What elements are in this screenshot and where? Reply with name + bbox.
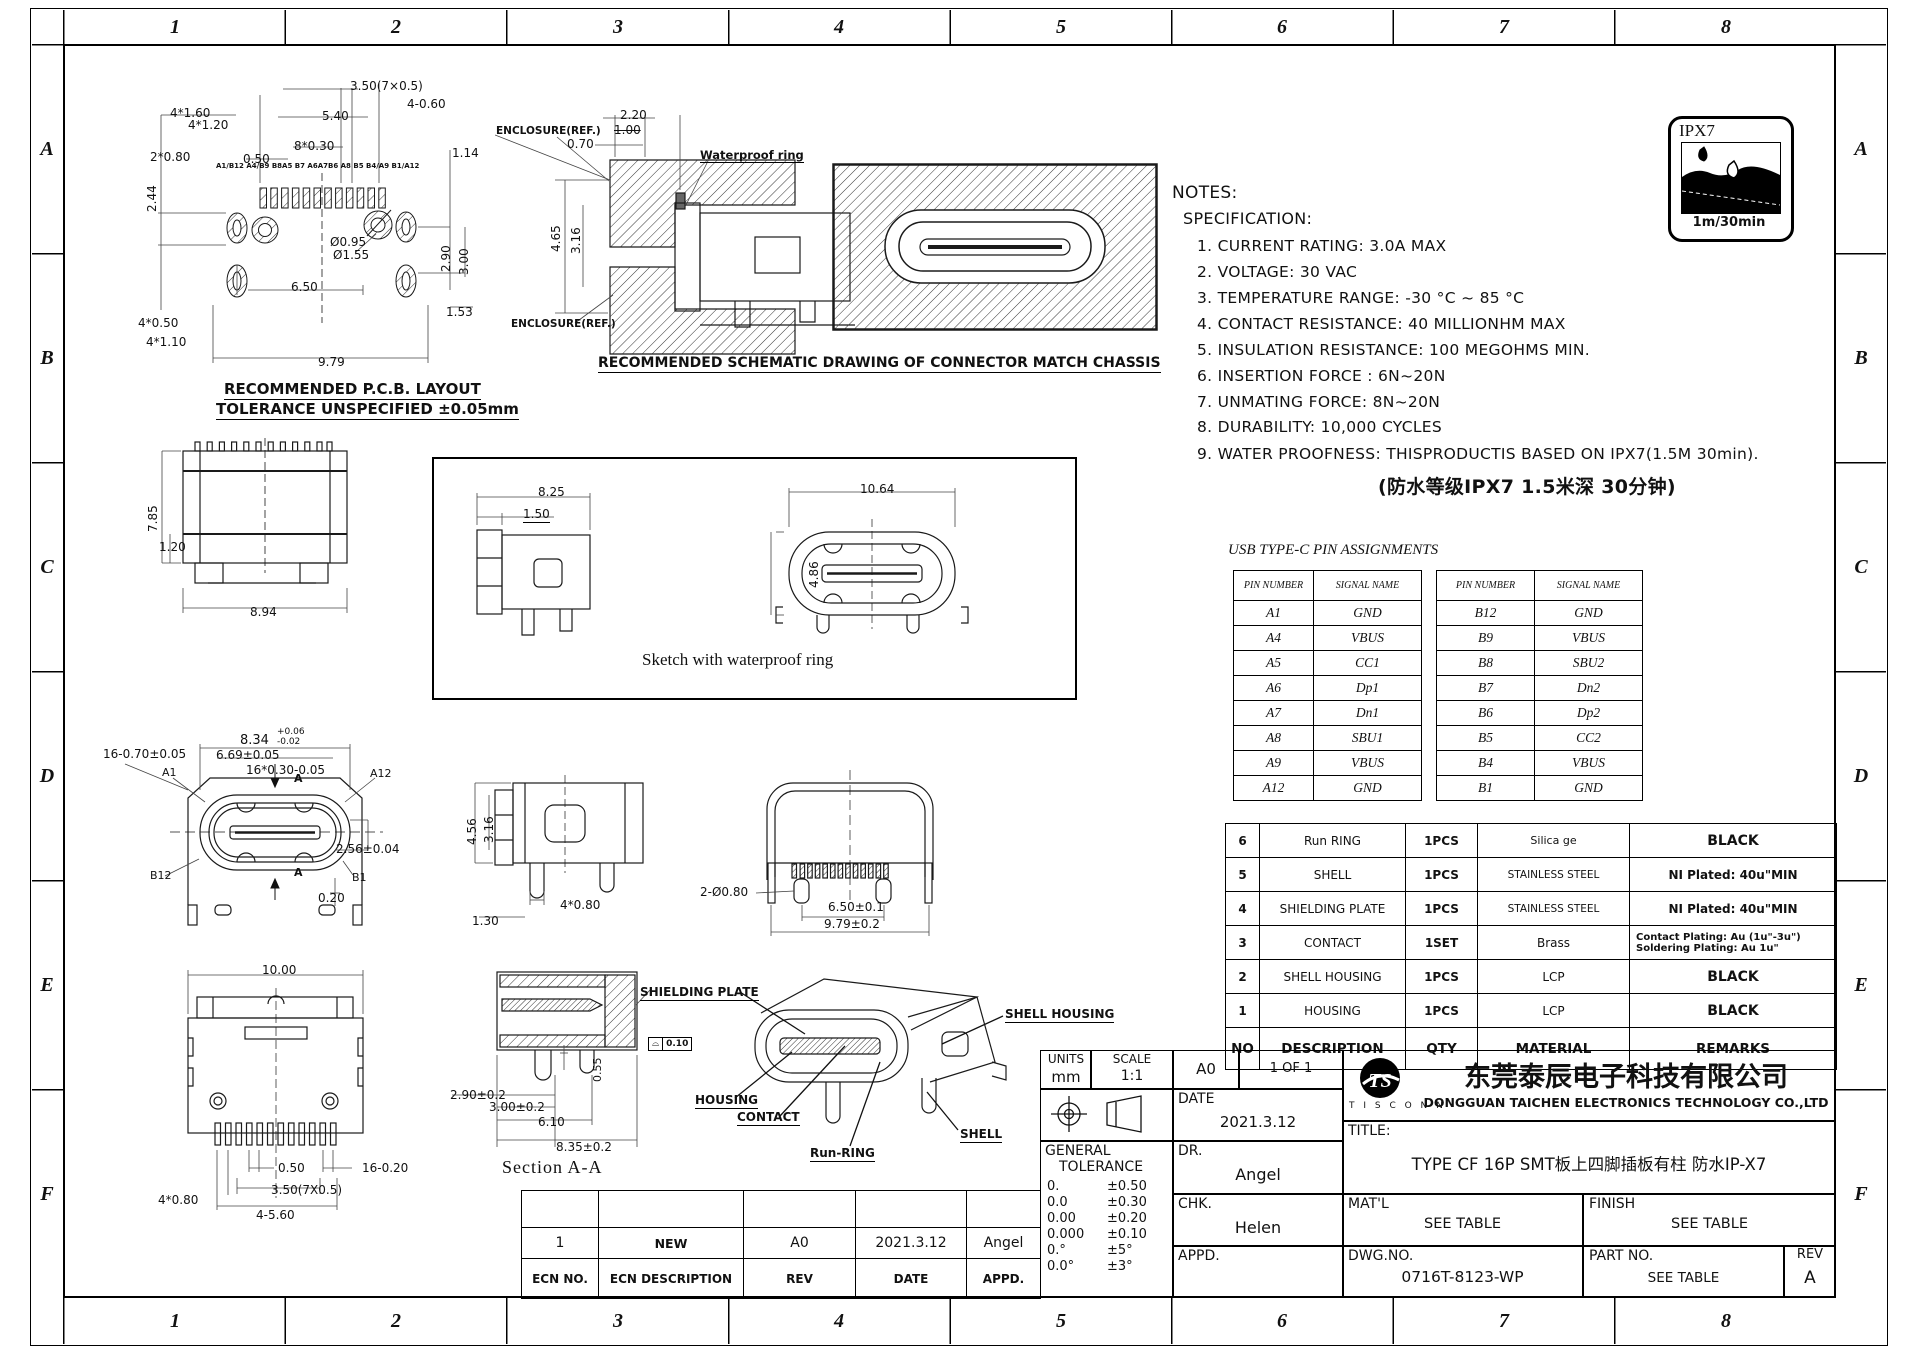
pin-cell: A8: [1234, 726, 1314, 751]
pin-cell: GND: [1314, 776, 1422, 801]
dim-label: 1.30: [472, 915, 499, 928]
bom-cell: Silica ge: [1478, 824, 1630, 858]
zone-label: 7: [1493, 1310, 1515, 1333]
zone-label: 2: [385, 1310, 407, 1333]
drawing-sheet: 1 2 3 4 5 6 7 8 1 2 3 4 5 6 7 8 A B C D …: [0, 0, 1920, 1356]
tolerance-precision-col: 0. 0.0 0.00 0.000 0.° 0.0°: [1047, 1179, 1084, 1275]
dim-label: 8.94: [250, 606, 277, 619]
date-cell: DATE 2021.3.12: [1172, 1088, 1344, 1142]
zone-label: 8: [1715, 16, 1737, 39]
tolerance-row: 0.°: [1047, 1243, 1084, 1259]
zone-label: 7: [1493, 16, 1515, 39]
note-item: 3. TEMPERATURE RANGE: -30 °C ~ 85 °C: [1197, 289, 1524, 307]
note-chinese: (防水等级IPX7 1.5米深 30分钟): [1378, 472, 1676, 499]
pin-cell: B9: [1437, 626, 1535, 651]
zone-label: D: [38, 765, 56, 788]
zone-label: 2: [385, 16, 407, 39]
callout-housing: HOUSING: [695, 1094, 758, 1109]
dim-label: 1.14: [452, 147, 479, 160]
dim-label: 10.64: [860, 483, 894, 496]
company-name-en: DONGGUAN TAICHEN ELECTRONICS TECHNOLOGY …: [1421, 1095, 1831, 1110]
pin-cell: A5: [1234, 651, 1314, 676]
revision-cell: [599, 1191, 744, 1228]
bom-cell: SHIELDING PLATE: [1260, 892, 1406, 926]
dim-label: Ø0.95: [330, 236, 366, 249]
dim-label: 1.20: [159, 541, 186, 554]
dim-label: 2.56±0.04: [336, 843, 400, 856]
bom-cell: 1: [1226, 994, 1260, 1028]
tolerance-row: ±0.20: [1107, 1211, 1147, 1227]
bom-cell: 6: [1226, 824, 1260, 858]
company-cell: TS T I S C O N N 东莞泰辰电子科技有限公司 DONGGUAN T…: [1342, 1050, 1836, 1122]
zone-label: C: [38, 556, 56, 579]
title-cell: TITLE: TYPE CF 16P SMT板上四脚插板有柱 防水IP-X7: [1342, 1120, 1836, 1195]
waterproof-ring-label: Waterproof ring: [700, 149, 804, 163]
callout-shielding-plate: SHIELDING PLATE: [640, 986, 759, 1001]
bom-cell: BLACK: [1630, 960, 1837, 994]
zone-label: F: [1852, 1183, 1870, 1206]
zone-label: 5: [1050, 16, 1072, 39]
chassis-front-drawing: [832, 163, 1158, 331]
pin-cell: Dn2: [1535, 676, 1643, 701]
pin-cell: GND: [1535, 601, 1643, 626]
zone-strip-top: [63, 10, 1836, 44]
bom-cell: STAINLESS STEEL: [1478, 892, 1630, 926]
bom-cell: 3: [1226, 926, 1260, 960]
zone-label: E: [38, 974, 56, 997]
pin-callout: A12: [370, 768, 392, 780]
pin-cell: Dn1: [1314, 701, 1422, 726]
revision-cell: A0: [744, 1228, 856, 1259]
bom-cell: STAINLESS STEEL: [1478, 858, 1630, 892]
pin-callout: B1: [352, 872, 367, 884]
date-value: 2021.3.12: [1173, 1113, 1343, 1131]
chassis-caption: RECOMMENDED SCHEMATIC DRAWING OF CONNECT…: [598, 356, 1161, 373]
note-item: 1. CURRENT RATING: 3.0A MAX: [1197, 237, 1446, 255]
sheet-cell: 1 OF 1: [1238, 1050, 1344, 1090]
zone-label: 4: [828, 16, 850, 39]
note-item: 5. INSULATION RESISTANCE: 100 MEGOHMS MI…: [1197, 341, 1590, 359]
dim-label: 16-0.70±0.05: [103, 748, 186, 761]
dim-label: 8.34: [240, 734, 269, 748]
pcb-caption-2: TOLERANCE UNSPECIFIED ±0.05mm: [216, 402, 519, 420]
ipx7-picture: [1681, 142, 1781, 214]
dim-label: 7.85: [147, 505, 160, 532]
dim-label: 1.50: [523, 508, 550, 523]
bom-cell: 1PCS: [1406, 994, 1478, 1028]
dim-label: 4*1.10: [146, 336, 186, 349]
bom-cell: 2: [1226, 960, 1260, 994]
bom-cell: 5: [1226, 858, 1260, 892]
pcb-layout-drawing: [128, 55, 528, 385]
zone-label: 3: [607, 16, 629, 39]
dim-label: 16*0.30-0.05: [246, 764, 325, 777]
company-name-cn: 东莞泰辰电子科技有限公司: [1421, 1055, 1831, 1094]
dim-label: 4.65: [550, 225, 563, 252]
pin-col-header: PIN NUMBER: [1234, 571, 1314, 601]
dim-label: 4-5.60: [256, 1209, 295, 1222]
bom-cell: BLACK: [1630, 994, 1837, 1028]
zone-label: 4: [828, 1310, 850, 1333]
section-arrow-label: A: [294, 867, 303, 879]
pin-col-header: PIN NUMBER: [1437, 571, 1535, 601]
dim-label: 2*0.80: [150, 151, 190, 164]
tolerance-row: 0.0°: [1047, 1259, 1084, 1275]
pin-table-title: USB TYPE-C PIN ASSIGNMENTS: [1228, 543, 1438, 559]
tolerance-row: 0.: [1047, 1179, 1084, 1195]
note-item: 2. VOLTAGE: 30 VAC: [1197, 263, 1357, 281]
pin-callout: B12: [150, 870, 172, 882]
tolerance-row: ±5°: [1107, 1243, 1147, 1259]
pin-cell: VBUS: [1535, 751, 1643, 776]
dim-label: 4*0.80: [560, 899, 600, 912]
pin-cell: A4: [1234, 626, 1314, 651]
notes-subheading: SPECIFICATION:: [1183, 209, 1312, 228]
revision-header: APPD.: [967, 1259, 1041, 1299]
dim-label: 5.40: [322, 110, 349, 123]
bom-table: 6 Run RING 1PCS Silica ge BLACK 5 SHELL …: [1225, 823, 1837, 1070]
dim-label: 8.25: [538, 486, 565, 499]
projection-cell: [1040, 1088, 1174, 1142]
dim-label: 6.69±0.05: [216, 749, 280, 762]
pin-cell: VBUS: [1535, 626, 1643, 651]
pin-cell: GND: [1314, 601, 1422, 626]
scale-cell: SCALE 1:1: [1090, 1050, 1174, 1090]
dim-label: 4*0.50: [138, 317, 178, 330]
rev-value: A: [1785, 1268, 1835, 1288]
pin-cell: B12: [1437, 601, 1535, 626]
pcb-caption-1: RECOMMENDED P.C.B. LAYOUT: [224, 382, 481, 400]
zone-label: 1: [164, 16, 186, 39]
pin-cell: GND: [1535, 776, 1643, 801]
pin-cell: B4: [1437, 751, 1535, 776]
checked-cell: CHK. Helen: [1172, 1193, 1344, 1247]
zone-label: 6: [1271, 16, 1293, 39]
units-label: UNITS: [1041, 1052, 1091, 1066]
scale-value: 1:1: [1091, 1068, 1173, 1084]
pin-callout: A1: [162, 767, 177, 779]
dim-label: 3.50(7×0.5): [350, 80, 423, 93]
revision-cell: [744, 1191, 856, 1228]
pin-cell: A7: [1234, 701, 1314, 726]
dim-label: 6.10: [538, 1116, 565, 1129]
drawn-cell: DR. Angel: [1172, 1140, 1344, 1195]
bom-cell: NI Plated: 40u"MIN: [1630, 892, 1837, 926]
water-icon: [1682, 143, 1780, 213]
projection-symbol-icon: [1041, 1089, 1171, 1139]
dim-label: 4*0.80: [158, 1194, 198, 1207]
zone-label: C: [1852, 556, 1870, 579]
tolerance-row: ±0.50: [1107, 1179, 1147, 1195]
dwg-label: DWG.NO.: [1348, 1248, 1413, 1264]
rev-label: REV: [1785, 1247, 1835, 1262]
dim-label: 3.00±0.2: [489, 1101, 545, 1114]
dim-label: Ø1.55: [333, 249, 369, 262]
notes-heading: NOTES:: [1172, 183, 1238, 203]
dim-label: 0.55: [592, 1058, 604, 1083]
pin-cell: CC1: [1314, 651, 1422, 676]
side-view-1-drawing: [148, 438, 383, 628]
bom-cell: Contact Plating: Au (1u"-3u") Soldering …: [1630, 926, 1837, 960]
revision-header: REV: [744, 1259, 856, 1299]
bom-cell: Run RING: [1260, 824, 1406, 858]
sketch-caption: Sketch with waterproof ring: [642, 651, 833, 669]
tolerance-row: ±0.10: [1107, 1227, 1147, 1243]
ipx7-badge: IPX7 1m/30min: [1668, 116, 1794, 242]
dim-label: 4-0.60: [407, 98, 446, 111]
title-label: TITLE:: [1348, 1123, 1391, 1139]
note-item: 7. UNMATING FORCE: 8N~20N: [1197, 393, 1440, 411]
dim-label: 0.20: [318, 892, 345, 905]
note-item: 8. DURABILITY: 10,000 CYCLES: [1197, 418, 1442, 436]
zone-label: D: [1852, 765, 1870, 788]
revision-cell: [856, 1191, 967, 1228]
pin-cell: VBUS: [1314, 626, 1422, 651]
note-item: 4. CONTACT RESISTANCE: 40 MILLIONHM MAX: [1197, 315, 1566, 333]
pin-cell: SBU2: [1535, 651, 1643, 676]
svg-text:TS: TS: [1368, 1070, 1391, 1092]
callout-shell: SHELL: [960, 1128, 1002, 1143]
dim-label: 6.50±0.1: [828, 901, 884, 914]
dim-label: 0.70: [567, 138, 594, 151]
dim-label: 4*1.20: [188, 119, 228, 132]
tolerance-row: ±0.30: [1107, 1195, 1147, 1211]
dim-label: 2.44: [146, 185, 159, 212]
bom-cell: LCP: [1478, 994, 1630, 1028]
size-value: A0: [1173, 1060, 1239, 1078]
pin-cell: B7: [1437, 676, 1535, 701]
callout-run-ring: Run-RING: [810, 1147, 875, 1162]
pin-cell: B1: [1437, 776, 1535, 801]
waterproof-sketch-box: 8.25 1.50 10.64 4.86 Sketch with waterpr…: [432, 457, 1077, 700]
bom-cell: BLACK: [1630, 824, 1837, 858]
rev-cell: REV A: [1784, 1245, 1836, 1298]
bom-cell: CONTACT: [1260, 926, 1406, 960]
bom-cell: NI Plated: 40u"MIN: [1630, 858, 1837, 892]
matl-label: MAT'L: [1348, 1196, 1389, 1212]
pin-cell: A9: [1234, 751, 1314, 776]
bom-cell: LCP: [1478, 960, 1630, 994]
bom-cell: Brass: [1478, 926, 1630, 960]
tolerance-row: ±3°: [1107, 1259, 1147, 1275]
revision-cell: 2021.3.12: [856, 1228, 967, 1259]
bom-remark-line: Contact Plating: Au (1u"-3u"): [1636, 932, 1836, 943]
appd-label: APPD.: [1178, 1248, 1220, 1264]
bom-cell: 1PCS: [1406, 858, 1478, 892]
zone-label: 5: [1050, 1310, 1072, 1333]
pin-cell: Dp1: [1314, 676, 1422, 701]
pin-cell: A6: [1234, 676, 1314, 701]
pin-table-b: PIN NUMBERSIGNAL NAME B12GND B9VBUS B8SB…: [1436, 570, 1643, 801]
bom-cell: 4: [1226, 892, 1260, 926]
dim-label: 9.79: [318, 356, 345, 369]
dim-label: 3.00: [458, 248, 471, 275]
dim-label: 8.35±0.2: [556, 1141, 612, 1154]
dim-label: 2.90: [440, 245, 453, 272]
dim-label: 4.56: [466, 818, 479, 845]
pin-col-header: SIGNAL NAME: [1535, 571, 1643, 601]
revision-header: ECN NO.: [522, 1259, 599, 1299]
dim-label: 9.79±0.2: [824, 918, 880, 931]
pin-cell: Dp2: [1535, 701, 1643, 726]
tolerance-cell: GENERAL TOLERANCE 0. 0.0 0.00 0.000 0.° …: [1040, 1140, 1174, 1298]
tolerance-label: TOLERANCE: [1059, 1159, 1143, 1175]
bom-cell: 1PCS: [1406, 960, 1478, 994]
dwg-value: 0716T-8123-WP: [1343, 1268, 1582, 1286]
bom-cell: 1PCS: [1406, 892, 1478, 926]
bom-cell: HOUSING: [1260, 994, 1406, 1028]
section-caption: Section A-A: [502, 1158, 603, 1177]
dr-label: DR.: [1178, 1143, 1202, 1159]
zone-label: B: [1852, 347, 1870, 370]
pin-table-a: PIN NUMBERSIGNAL NAME A1GND A4VBUS A5CC1…: [1233, 570, 1422, 801]
revision-cell: 1: [522, 1228, 599, 1259]
units-value: mm: [1041, 1068, 1091, 1086]
pin-cell: SBU1: [1314, 726, 1422, 751]
pin-col-header: SIGNAL NAME: [1314, 571, 1422, 601]
dr-value: Angel: [1173, 1165, 1343, 1184]
dim-label: 1.53: [446, 306, 473, 319]
pin-cell: A12: [1234, 776, 1314, 801]
dim-label: 1.00: [614, 124, 641, 137]
zone-label: 6: [1271, 1310, 1293, 1333]
zone-label: A: [1852, 138, 1870, 161]
enclosure-label: ENCLOSURE(REF.): [511, 319, 616, 330]
approved-cell: APPD.: [1172, 1245, 1344, 1298]
chk-label: CHK.: [1178, 1196, 1212, 1212]
zone-strip-right: [1836, 44, 1886, 1298]
bom-cell: SHELL: [1260, 858, 1406, 892]
revision-cell: NEW: [599, 1228, 744, 1259]
finish-cell: FINISH SEE TABLE: [1583, 1193, 1836, 1247]
dim-label: 16-0.20: [362, 1162, 408, 1175]
dim-label: 8*0.30: [294, 140, 334, 153]
dim-label: 6.50: [291, 281, 318, 294]
zone-strip-left: [32, 44, 63, 1298]
revision-table: 1 NEW A0 2021.3.12 Angel ECN NO. ECN DES…: [521, 1190, 1041, 1299]
tolerance-value-col: ±0.50 ±0.30 ±0.20 ±0.10 ±5° ±3°: [1107, 1179, 1147, 1275]
bom-cell: SHELL HOUSING: [1260, 960, 1406, 994]
zone-label: 1: [164, 1310, 186, 1333]
section-arrow-label: A: [294, 773, 303, 785]
dim-label: 4.86: [808, 561, 821, 588]
dim-label: 10.00: [262, 964, 296, 977]
ipx7-caption: 1m/30min: [1671, 215, 1787, 230]
part-no-cell: PART NO. SEE TABLE: [1583, 1245, 1784, 1298]
revision-cell: [967, 1191, 1041, 1228]
material-cell: MAT'L SEE TABLE: [1342, 1193, 1583, 1247]
note-item: 9. WATER PROOFNESS: THISPRODUCTIS BASED …: [1197, 445, 1759, 463]
callout-shell-housing: SHELL HOUSING: [1005, 1008, 1114, 1023]
dim-label: 2.20: [620, 109, 647, 122]
dim-label: 3.50(7X0.5): [271, 1184, 342, 1197]
zone-strip-bottom: [63, 1298, 1836, 1344]
tolerance-row: 0.0: [1047, 1195, 1084, 1211]
pin-cell: B8: [1437, 651, 1535, 676]
dim-label: 3.16: [483, 816, 496, 843]
part-label: PART NO.: [1589, 1248, 1653, 1264]
callout-contact: CONTACT: [737, 1111, 800, 1126]
enclosure-label: ENCLOSURE(REF.): [496, 126, 601, 137]
dim-tolerance: -0.02: [277, 738, 300, 747]
zone-label: A: [38, 138, 56, 161]
sheet-value: 1 OF 1: [1239, 1061, 1343, 1076]
ipx7-label: IPX7: [1679, 121, 1715, 141]
dim-label: 3.16: [570, 227, 583, 254]
units-cell: UNITS mm: [1040, 1050, 1092, 1090]
tolerance-row: 0.000: [1047, 1227, 1084, 1243]
pin-cell: VBUS: [1314, 751, 1422, 776]
size-cell: A0: [1172, 1050, 1240, 1090]
zone-label: 3: [607, 1310, 629, 1333]
finish-value: SEE TABLE: [1584, 1216, 1835, 1232]
bom-cell: 1SET: [1406, 926, 1478, 960]
revision-header: DATE: [856, 1259, 967, 1299]
note-item: 6. INSERTION FORCE : 6N~20N: [1197, 367, 1446, 385]
zone-label: B: [38, 347, 56, 370]
scale-label: SCALE: [1091, 1052, 1173, 1066]
zone-label: F: [38, 1183, 56, 1206]
pin-cell: B6: [1437, 701, 1535, 726]
part-value: SEE TABLE: [1584, 1270, 1783, 1286]
dim-label: 0.50: [278, 1162, 305, 1175]
dwg-no-cell: DWG.NO. 0716T-8123-WP: [1342, 1245, 1583, 1298]
dim-label: 2-Ø0.80: [700, 886, 748, 899]
bom-remark-line: Soldering Plating: Au 1u": [1636, 943, 1836, 954]
general-label: GENERAL: [1045, 1143, 1111, 1159]
revision-cell: Angel: [967, 1228, 1041, 1259]
revision-cell: [522, 1191, 599, 1228]
matl-value: SEE TABLE: [1343, 1216, 1582, 1232]
title-value: TYPE CF 16P SMT板上四脚插板有柱 防水IP-X7: [1343, 1151, 1835, 1175]
company-logo-icon: TS: [1353, 1056, 1411, 1100]
pin-cell: B5: [1437, 726, 1535, 751]
chk-value: Helen: [1173, 1218, 1343, 1237]
pin-cell: A1: [1234, 601, 1314, 626]
tolerance-row: 0.00: [1047, 1211, 1084, 1227]
pcb-pin-names: A1/B12 A4/B9 B8A5 B7 A6A7B6 A8 B5 B4/A9 …: [216, 163, 419, 170]
pin-cell: CC2: [1535, 726, 1643, 751]
zone-label: 8: [1715, 1310, 1737, 1333]
bom-cell: 1PCS: [1406, 824, 1478, 858]
zone-label: E: [1852, 974, 1870, 997]
revision-header: ECN DESCRIPTION: [599, 1259, 744, 1299]
finish-label: FINISH: [1589, 1196, 1635, 1212]
date-label: DATE: [1178, 1091, 1214, 1107]
